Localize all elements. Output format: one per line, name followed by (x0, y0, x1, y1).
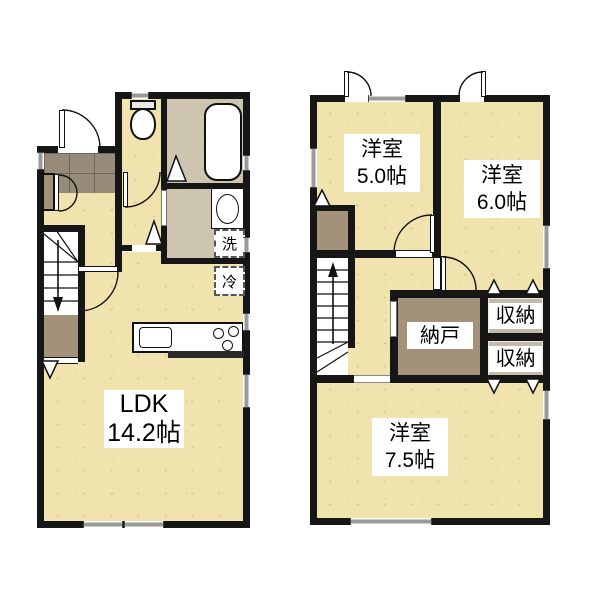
window (243, 237, 250, 253)
wall (480, 290, 550, 298)
wall (310, 375, 354, 383)
bedroom5-door-opening (396, 251, 432, 257)
entrance-door-leaf (59, 110, 65, 148)
window (310, 148, 317, 188)
under-stair-closet (44, 315, 78, 357)
bedroom5-size: 5.0帖 (357, 163, 407, 190)
window (543, 225, 550, 269)
washbasin-bowl-icon (216, 194, 239, 224)
ldk-name: LDK (120, 390, 169, 419)
stairs-first-floor (44, 230, 78, 315)
stove-burner-icon (222, 340, 233, 351)
window (243, 374, 250, 408)
wall (161, 258, 250, 264)
wall (480, 290, 488, 383)
bedroom75-opening (354, 375, 390, 383)
stove-burner-icon (228, 326, 239, 337)
stove-burner-icon (213, 328, 224, 339)
sliding-glass-door (83, 521, 123, 528)
bedroom5-closet (317, 208, 348, 250)
bedroom6-name: 洋室 (481, 162, 523, 189)
wall (78, 225, 85, 362)
toilet-door-leaf (123, 172, 128, 207)
window (243, 313, 250, 331)
closet-lower-text: 収納 (496, 347, 536, 371)
window (243, 155, 250, 171)
bedroom75-name: 洋室 (389, 420, 431, 447)
window (368, 95, 406, 102)
bedroom75-label: 洋室 7.5帖 (372, 418, 448, 476)
ldk-door-leaf (78, 266, 118, 272)
wall (115, 92, 122, 153)
sliding-glass-door (124, 521, 164, 528)
wall (115, 153, 122, 272)
bedroom75-size: 7.5帖 (385, 447, 435, 474)
casement-window-leaf (344, 71, 349, 97)
ldk-size: 14.2帖 (107, 419, 181, 448)
entrance-door-arc (62, 110, 100, 148)
casement-window-arc (459, 72, 483, 96)
toilet-icon (130, 108, 156, 140)
window (131, 92, 149, 99)
storage-room-text: 納戸 (420, 324, 460, 348)
bedroom5-door-leaf (430, 215, 435, 253)
stairs-second-floor (317, 258, 348, 375)
casement-window-arc (347, 72, 371, 96)
closet-lower-label: 収納 (489, 346, 542, 372)
refrigerator-box: 冷 (214, 266, 245, 296)
wall (480, 375, 550, 383)
storage-room-sliding-door (390, 301, 397, 337)
wall (122, 245, 132, 251)
closet-upper-text: 収納 (496, 304, 536, 328)
shoe-cabinet-front (54, 174, 59, 211)
window (37, 152, 44, 170)
bedroom5-label: 洋室 5.0帖 (344, 134, 420, 192)
wall (543, 95, 550, 525)
floorplan-canvas: 洗 冷 LDK 14.2帖 (0, 0, 600, 600)
washing-machine-label: 洗 (222, 233, 237, 254)
washing-machine-box: 洗 (214, 229, 245, 258)
bedroom6-size: 6.0帖 (477, 189, 527, 216)
sliding-glass-door (350, 518, 432, 525)
bedroom6-label: 洋室 6.0帖 (464, 160, 540, 218)
washroom-sliding-door (161, 190, 167, 226)
closet-upper-label: 収納 (489, 303, 542, 329)
under-stair-closet-door (44, 357, 78, 364)
wall (348, 205, 355, 258)
bedroom5-name: 洋室 (361, 136, 403, 163)
casement-window-leaf (481, 71, 486, 97)
storage-room-label: 納戸 (407, 322, 473, 349)
wall (488, 333, 543, 341)
refrigerator-label: 冷 (222, 271, 237, 292)
bathtub-icon (204, 103, 242, 181)
wall (390, 375, 488, 383)
wall (390, 290, 488, 298)
kitchen-sink-icon (139, 327, 172, 348)
bedroom6-door-opening (434, 258, 440, 289)
wall (161, 92, 167, 185)
window (543, 390, 550, 420)
ldk-label: LDK 14.2帖 (104, 390, 184, 448)
bedroom6-door-leaf (441, 256, 446, 291)
kitchen-counter-base (168, 351, 244, 358)
wall (348, 258, 355, 348)
